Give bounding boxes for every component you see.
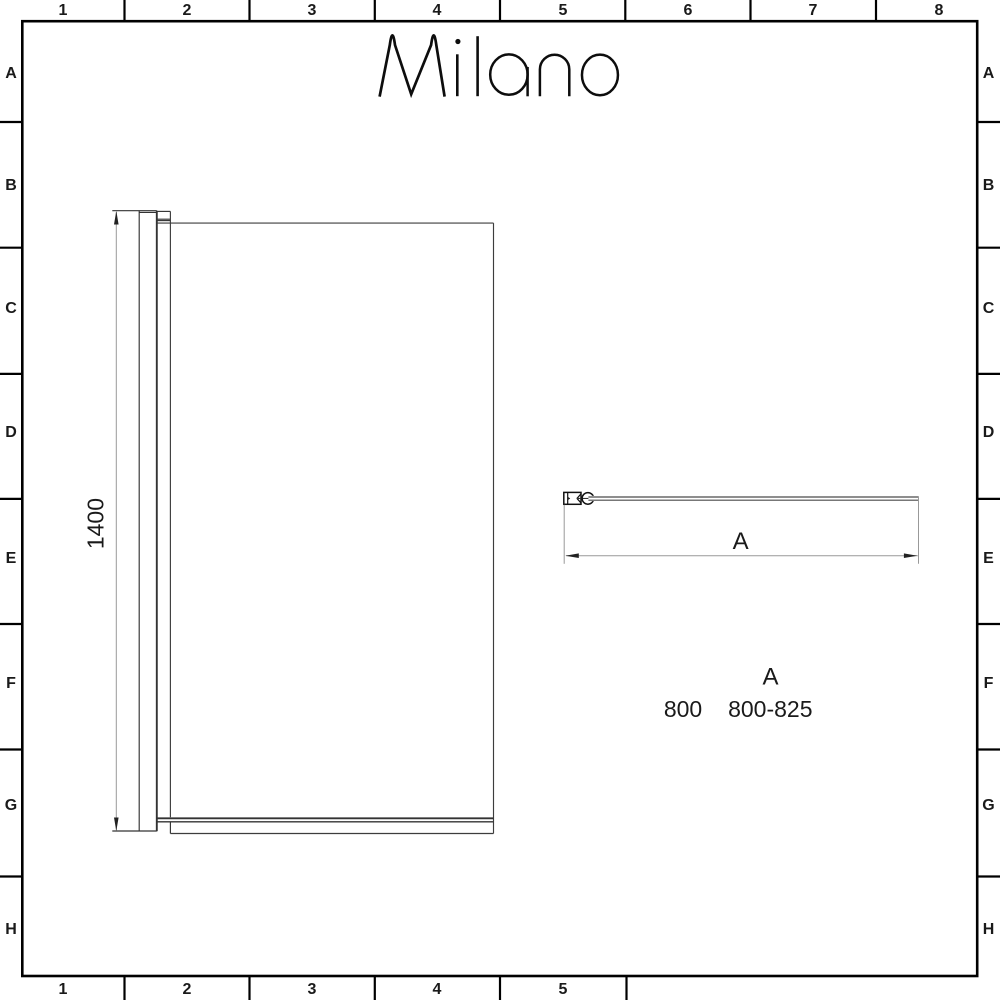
svg-text:5: 5 <box>559 2 568 19</box>
svg-text:1: 1 <box>59 981 68 998</box>
svg-text:3: 3 <box>308 2 317 19</box>
svg-text:2: 2 <box>183 2 192 19</box>
svg-text:F: F <box>6 675 16 692</box>
svg-text:2: 2 <box>183 981 192 998</box>
svg-text:D: D <box>5 424 17 441</box>
svg-text:1400: 1400 <box>83 498 109 549</box>
svg-text:H: H <box>983 921 995 938</box>
svg-text:B: B <box>983 177 995 194</box>
svg-text:C: C <box>983 300 995 317</box>
svg-text:E: E <box>6 550 17 567</box>
svg-text:800: 800 <box>664 696 702 722</box>
svg-text:G: G <box>982 797 994 814</box>
svg-text:800-825: 800-825 <box>728 696 812 722</box>
svg-text:E: E <box>983 550 994 567</box>
svg-text:F: F <box>984 675 994 692</box>
svg-text:A: A <box>733 528 749 555</box>
svg-text:1: 1 <box>59 2 68 19</box>
svg-text:6: 6 <box>684 2 693 19</box>
svg-text:4: 4 <box>433 2 442 19</box>
svg-text:A: A <box>983 65 995 82</box>
svg-text:3: 3 <box>308 981 317 998</box>
svg-text:A: A <box>5 65 17 82</box>
svg-text:7: 7 <box>809 2 818 19</box>
svg-text:A: A <box>762 664 778 691</box>
svg-text:G: G <box>5 797 17 814</box>
svg-text:8: 8 <box>935 2 944 19</box>
svg-text:5: 5 <box>559 981 568 998</box>
svg-text:B: B <box>5 177 17 194</box>
svg-text:C: C <box>5 300 17 317</box>
svg-text:D: D <box>983 424 995 441</box>
svg-text:4: 4 <box>433 981 442 998</box>
svg-text:H: H <box>5 921 17 938</box>
